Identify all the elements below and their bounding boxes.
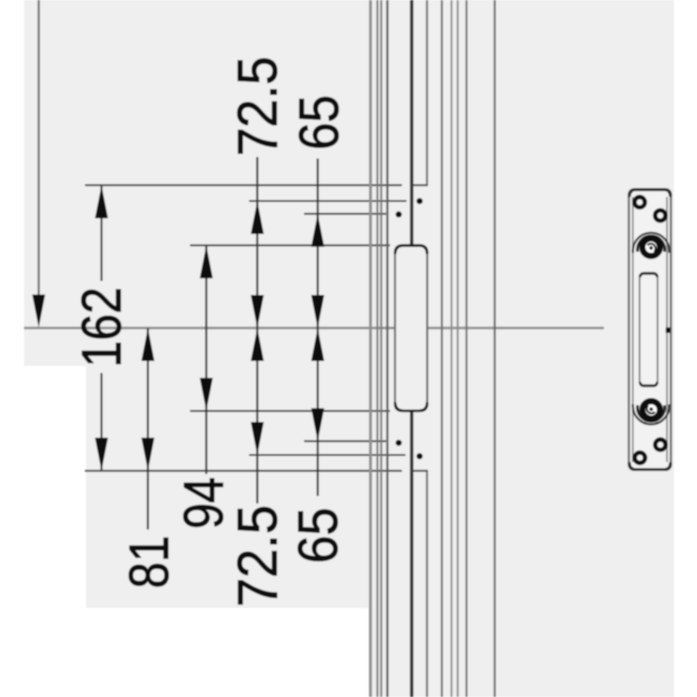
svg-text:81: 81 <box>117 536 180 589</box>
svg-text:65: 65 <box>287 95 350 150</box>
svg-text:72.5: 72.5 <box>226 505 289 607</box>
svg-text:72.5: 72.5 <box>225 57 288 157</box>
svg-text:162: 162 <box>70 287 133 368</box>
svg-text:65: 65 <box>286 508 349 564</box>
